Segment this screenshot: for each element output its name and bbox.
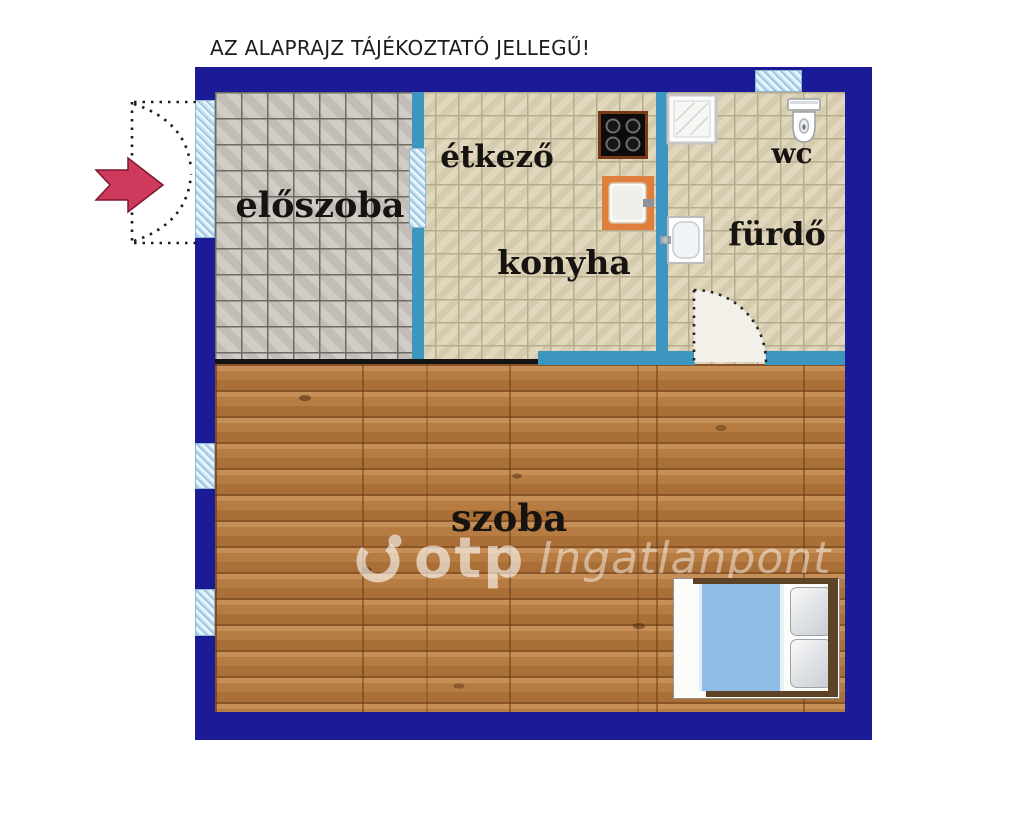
window-icon-left-1 xyxy=(195,443,215,489)
bed-frame-bottom xyxy=(706,691,828,697)
entrance-arrow-icon xyxy=(96,158,163,212)
window-icon-top xyxy=(755,70,802,92)
bed-pillow-2 xyxy=(790,639,832,688)
room-label-wc: wc xyxy=(763,140,821,168)
stove-icon xyxy=(598,111,648,159)
wall-thin-eloszoba-szoba xyxy=(215,359,538,364)
sink-icon xyxy=(602,176,654,230)
window-icon-left-2 xyxy=(195,589,215,636)
room-label-eloszoba: előszoba xyxy=(225,188,415,223)
room-label-furdo: fürdő xyxy=(713,218,841,250)
bed-pillow-1 xyxy=(790,587,832,636)
wall-right xyxy=(845,92,872,712)
wall-eloszoba-kitchen-upper xyxy=(412,92,424,148)
wall-bath-szoba-right xyxy=(765,351,845,365)
otp-logo-icon xyxy=(352,530,406,586)
washbasin-icon xyxy=(660,214,708,266)
watermark-name: Ingatlanpont xyxy=(539,533,831,584)
wall-bath-szoba-left xyxy=(538,351,695,365)
page-title: AZ ALAPRAJZ TÁJÉKOZTATÓ JELLEGŰ! xyxy=(210,36,590,60)
entrance-swing-icon xyxy=(92,92,217,254)
bathroom-door-swing-icon xyxy=(690,284,772,368)
shower-icon xyxy=(666,93,718,145)
room-eloszoba-floor xyxy=(215,92,412,364)
room-label-konyha: konyha xyxy=(488,246,640,279)
watermark-brand: otp xyxy=(414,526,525,591)
floor-plan-page: AZ ALAPRAJZ TÁJÉKOZTATÓ JELLEGŰ! xyxy=(0,0,1024,834)
wall-bottom xyxy=(195,712,872,740)
bed-headboard xyxy=(828,578,838,697)
wall-eloszoba-kitchen-lower xyxy=(412,228,424,364)
bed-blanket xyxy=(699,584,784,691)
room-label-etkezo: étkező xyxy=(422,142,572,173)
